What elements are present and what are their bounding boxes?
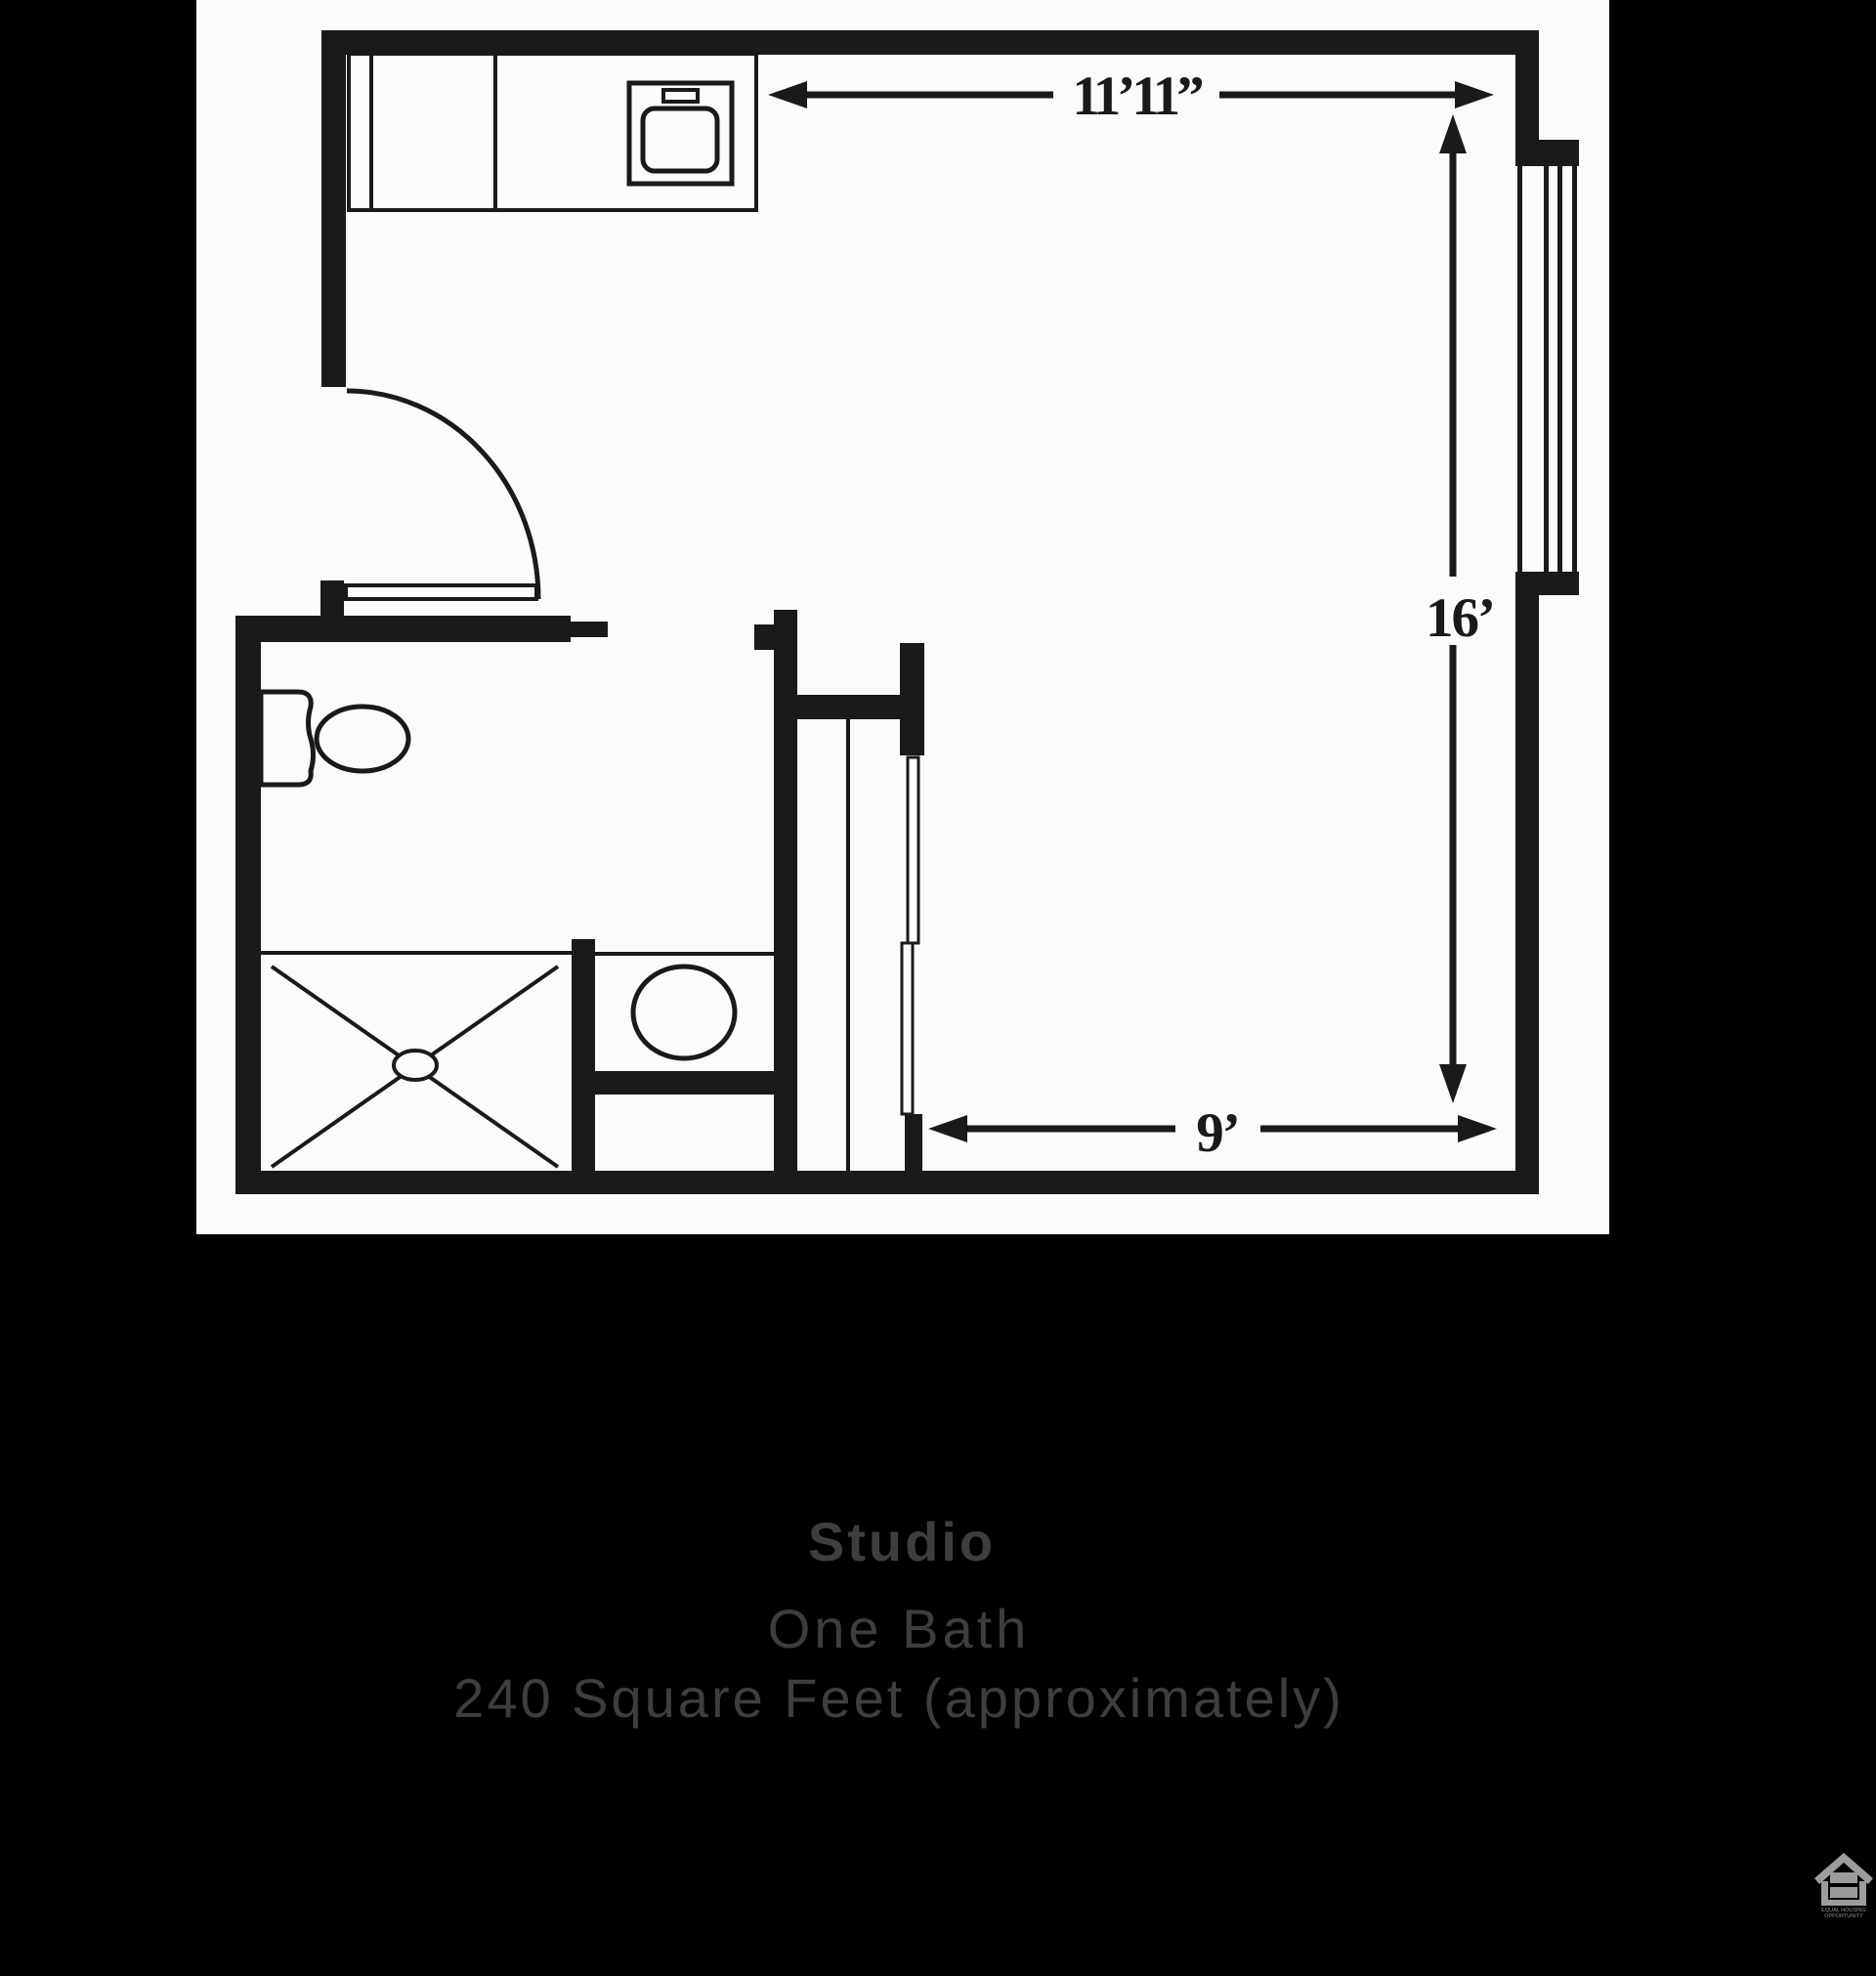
svg-text:OPPORTUNITY: OPPORTUNITY	[1824, 1913, 1863, 1919]
svg-text:11’11”: 11’11”	[1072, 65, 1202, 127]
svg-text:9’: 9’	[1196, 1102, 1238, 1164]
svg-text:16’: 16’	[1426, 587, 1494, 649]
